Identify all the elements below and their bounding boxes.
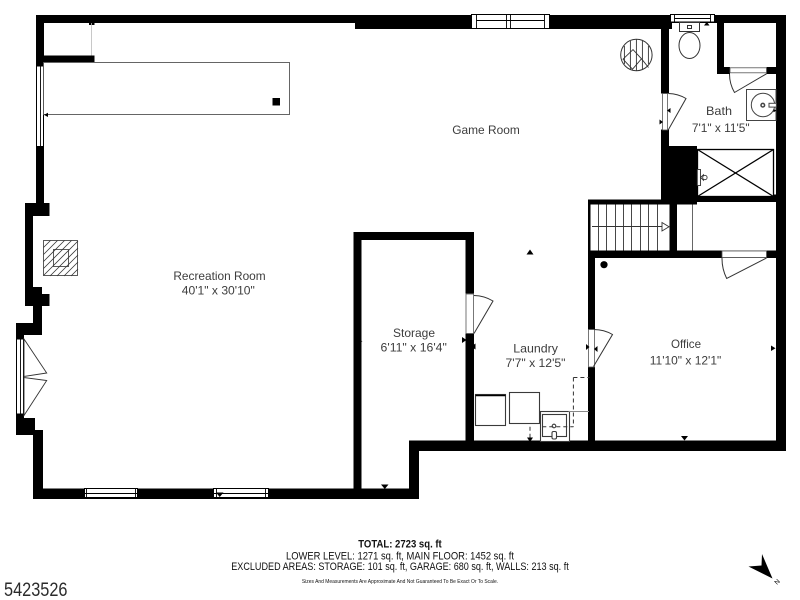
svg-text:Storage: Storage <box>393 326 435 340</box>
svg-text:Office: Office <box>671 337 701 351</box>
svg-text:11'10" x 12'1": 11'10" x 12'1" <box>650 353 722 367</box>
svg-text:6'11" x 16'4": 6'11" x 16'4" <box>381 340 447 354</box>
svg-text:Sizes And Measurements Are App: Sizes And Measurements Are Approximate A… <box>302 579 498 585</box>
svg-text:EXCLUDED AREAS: STORAGE: 101 s: EXCLUDED AREAS: STORAGE: 101 sq. ft, GAR… <box>231 561 569 573</box>
svg-text:7'7" x 12'5": 7'7" x 12'5" <box>506 356 566 370</box>
svg-text:40'1" x 30'10": 40'1" x 30'10" <box>182 284 255 298</box>
svg-text:Recreation Room: Recreation Room <box>173 269 265 283</box>
svg-text:Laundry: Laundry <box>513 341 558 355</box>
svg-text:7'1" x 11'5": 7'1" x 11'5" <box>692 121 750 135</box>
svg-text:Game Room: Game Room <box>452 123 520 137</box>
svg-text:5423526: 5423526 <box>4 580 68 600</box>
svg-text:TOTAL: 2723 sq. ft: TOTAL: 2723 sq. ft <box>358 539 442 551</box>
svg-text:Bath: Bath <box>706 104 732 118</box>
